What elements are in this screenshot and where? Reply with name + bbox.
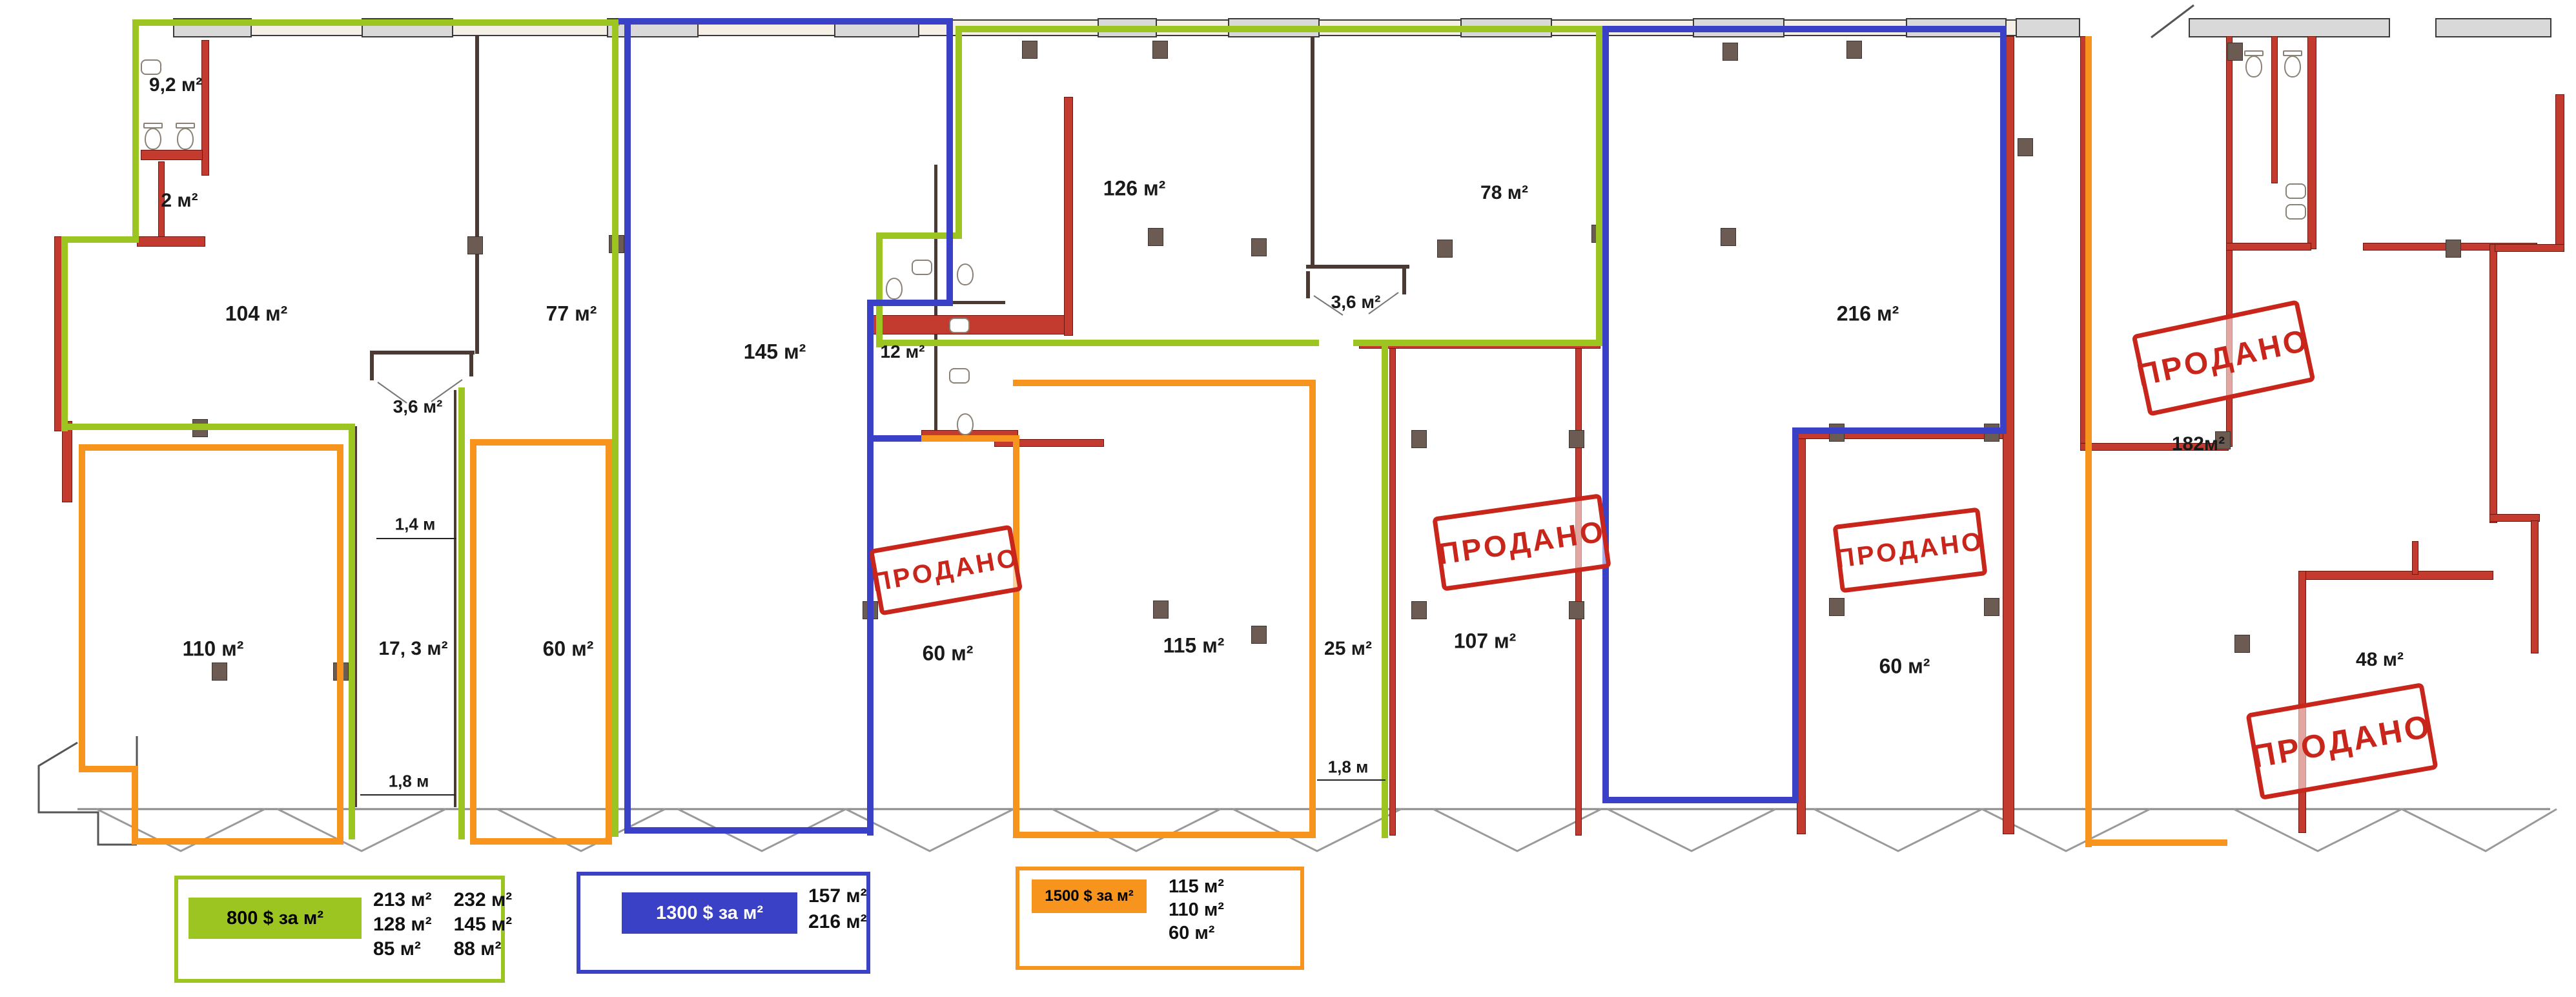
- toilet-icon: [886, 278, 903, 300]
- zone-outline-orange: [132, 766, 138, 845]
- wall-segment: [454, 390, 456, 807]
- room-label-25: 25 м²: [1324, 638, 1372, 660]
- dim-label-1-8-b: 1,8 м: [1328, 757, 1369, 777]
- column: [212, 663, 227, 681]
- zone-outline-blue: [1602, 797, 1796, 803]
- room-label-17-3: 17, 3 м²: [378, 638, 447, 660]
- room-label-78: 78 м²: [1480, 182, 1528, 204]
- red-wall-segment: [2307, 36, 2316, 249]
- zone-outline-green: [132, 19, 620, 26]
- column: [2227, 43, 2243, 61]
- area-item: 157 м²: [808, 883, 867, 909]
- room-label-182: 182м²: [2172, 433, 2225, 455]
- toilet-icon: [957, 413, 974, 435]
- area-item: 213 м²: [373, 888, 432, 912]
- column: [1411, 430, 1427, 448]
- red-wall-segment: [2271, 36, 2278, 183]
- zone-outline-blue: [1792, 427, 2005, 434]
- zone-outline-green: [61, 236, 139, 243]
- room-label-2: 2 м²: [161, 190, 198, 212]
- zone-outline-blue: [1602, 26, 1609, 803]
- column: [1984, 598, 1999, 616]
- toilet-tank-icon: [2283, 50, 2302, 56]
- red-wall-segment: [2489, 244, 2497, 523]
- zone-outline-orange: [2085, 839, 2227, 846]
- window-block: [2435, 18, 2551, 37]
- area-item: 60 м²: [1169, 921, 1224, 945]
- area-item: 128 м²: [373, 912, 432, 937]
- storefront-svg: [0, 0, 2576, 997]
- zone-outline-orange: [1013, 380, 1316, 386]
- room-label-216: 216 м²: [1837, 302, 1899, 326]
- red-wall-segment: [141, 150, 203, 160]
- column: [1437, 240, 1453, 258]
- column: [1846, 41, 1862, 59]
- zone-outline-orange: [337, 444, 343, 845]
- column: [1829, 598, 1845, 616]
- zone-outline-orange: [470, 439, 612, 446]
- toilet-tank-icon: [176, 123, 195, 128]
- zone-outline-blue: [1792, 433, 1799, 803]
- red-wall-segment: [2495, 244, 2564, 252]
- zone-outline-orange: [2085, 36, 2092, 847]
- room-label-3-6-b: 3,6 м²: [1331, 292, 1381, 313]
- area-item: 115 м²: [1169, 875, 1224, 898]
- wall-segment: [370, 351, 475, 355]
- legend-areas-1300: 157 м² 216 м²: [808, 883, 867, 935]
- wall-segment: [469, 351, 473, 376]
- room-label-60-a: 60 м²: [543, 637, 594, 661]
- red-wall-segment: [1389, 347, 1396, 836]
- zone-outline-blue: [868, 300, 953, 306]
- sink-icon: [949, 368, 970, 384]
- room-label-115: 115 м²: [1163, 634, 1225, 658]
- toilet-icon: [145, 128, 161, 150]
- red-wall-segment: [62, 421, 72, 502]
- red-wall-segment: [137, 236, 205, 247]
- dim-label-1-8-a: 1,8 м: [389, 772, 429, 792]
- zone-outline-orange: [79, 444, 85, 772]
- zone-outline-green: [1382, 346, 1388, 838]
- toilet-icon: [2245, 56, 2262, 77]
- zone-outline-orange: [1013, 435, 1019, 838]
- column: [1251, 626, 1267, 644]
- dim-line: [360, 794, 455, 796]
- zone-outline-orange: [79, 766, 138, 772]
- toilet-icon: [177, 128, 194, 150]
- sink-icon: [2285, 204, 2306, 220]
- room-label-3-6-a: 3,6 м²: [393, 396, 443, 417]
- red-wall-segment: [2531, 520, 2539, 653]
- red-wall-segment: [2226, 243, 2311, 251]
- wall-segment: [370, 355, 374, 380]
- room-label-107: 107 м²: [1454, 630, 1517, 653]
- zone-outline-blue: [624, 827, 872, 834]
- room-label-9-2: 9,2 м²: [149, 74, 202, 96]
- room-label-60-sold-left: 60 м²: [923, 642, 974, 666]
- room-label-104: 104 м²: [225, 302, 288, 326]
- legend-areas-800: 213 м² 128 м² 85 м² 232 м² 145 м² 88 м²: [373, 888, 512, 961]
- red-wall-segment: [2555, 94, 2564, 245]
- toilet-icon: [2284, 56, 2301, 77]
- toilet-tank-icon: [143, 123, 163, 128]
- zone-outline-blue: [2000, 26, 2007, 434]
- zone-outline-green: [876, 340, 1319, 346]
- zone-outline-blue: [624, 25, 631, 830]
- dim-label-1-4: 1,4 м: [395, 515, 436, 535]
- red-wall-segment: [2412, 541, 2418, 575]
- column: [1721, 228, 1736, 246]
- column: [1022, 41, 1038, 59]
- sink-icon: [2285, 183, 2306, 199]
- area-item: 216 м²: [808, 909, 867, 935]
- wall-segment: [1402, 267, 1406, 294]
- room-label-126: 126 м²: [1103, 177, 1166, 201]
- price-chip-1300: 1300 $ за м²: [622, 892, 797, 934]
- area-item: 110 м²: [1169, 898, 1224, 921]
- zone-outline-blue: [618, 18, 953, 25]
- red-wall-segment: [2298, 571, 2306, 833]
- room-label-48: 48 м²: [2356, 649, 2404, 671]
- column: [2018, 138, 2033, 156]
- room-label-12: 12 м²: [881, 342, 925, 362]
- zone-outline-green: [1353, 340, 1602, 346]
- wall-segment: [1306, 265, 1409, 269]
- column: [467, 236, 483, 254]
- zone-outline-orange: [79, 444, 343, 451]
- left-edge-steps: [39, 736, 137, 845]
- zone-outline-blue: [946, 18, 953, 305]
- window-block: [2016, 18, 2080, 37]
- zone-outline-green: [61, 236, 68, 431]
- area-item: 232 м²: [454, 888, 513, 912]
- area-item: 145 м²: [454, 912, 513, 937]
- room-label-60-sold-right: 60 м²: [1879, 655, 1930, 679]
- zone-outline-orange: [606, 439, 612, 845]
- column: [1251, 238, 1267, 256]
- room-label-145: 145 м²: [744, 340, 806, 364]
- zone-outline-green: [612, 19, 618, 837]
- zone-outline-orange: [921, 435, 1019, 442]
- dim-line: [1317, 779, 1385, 781]
- zone-outline-orange: [470, 838, 612, 845]
- zone-outline-orange: [132, 838, 343, 845]
- area-item: 85 м²: [373, 937, 432, 961]
- column: [1722, 43, 1738, 61]
- floor-plan: 9,2 м² 2 м² 104 м² 77 м² 3,6 м² 110 м² 1…: [0, 0, 2576, 997]
- toilet-icon: [957, 263, 974, 285]
- column: [1569, 430, 1584, 448]
- room-label-77: 77 м²: [546, 302, 597, 326]
- column: [1152, 41, 1168, 59]
- zone-outline-green: [956, 26, 962, 239]
- red-wall-segment: [1064, 97, 1073, 336]
- zone-outline-orange: [1309, 380, 1316, 838]
- sink-icon: [949, 318, 970, 333]
- red-wall-segment: [1575, 347, 1582, 836]
- column: [1148, 228, 1163, 246]
- wall-segment: [1306, 271, 1310, 298]
- door-leaf-line: [2151, 5, 2194, 37]
- area-item: 88 м²: [454, 937, 513, 961]
- zone-outline-green: [956, 26, 1602, 32]
- zone-outline-green: [349, 424, 355, 839]
- zone-outline-orange: [1013, 832, 1316, 838]
- zone-outline-orange: [470, 439, 476, 845]
- zone-outline-green: [61, 424, 353, 430]
- price-chip-800: 800 $ за м²: [189, 898, 362, 939]
- column: [2234, 635, 2250, 653]
- red-wall-segment: [2298, 571, 2493, 580]
- room-label-110: 110 м²: [183, 637, 244, 661]
- wall-segment: [475, 36, 479, 354]
- zone-outline-green: [132, 19, 139, 243]
- zone-outline-blue: [1602, 26, 2007, 32]
- column: [2446, 240, 2461, 258]
- legend-areas-1500: 115 м² 110 м² 60 м²: [1169, 875, 1224, 945]
- column: [1411, 601, 1427, 619]
- zone-outline-green: [1596, 26, 1602, 346]
- zone-outline-green: [876, 232, 883, 347]
- toilet-tank-icon: [2244, 50, 2264, 56]
- sink-icon: [912, 260, 932, 275]
- zone-outline-green: [458, 387, 465, 839]
- wall-segment: [1311, 36, 1314, 267]
- dim-line: [376, 538, 456, 539]
- price-chip-1500: 1500 $ за м²: [1032, 879, 1147, 913]
- window-block: [2189, 18, 2390, 37]
- column: [1569, 601, 1584, 619]
- column: [1153, 601, 1169, 619]
- sink-icon: [141, 59, 161, 75]
